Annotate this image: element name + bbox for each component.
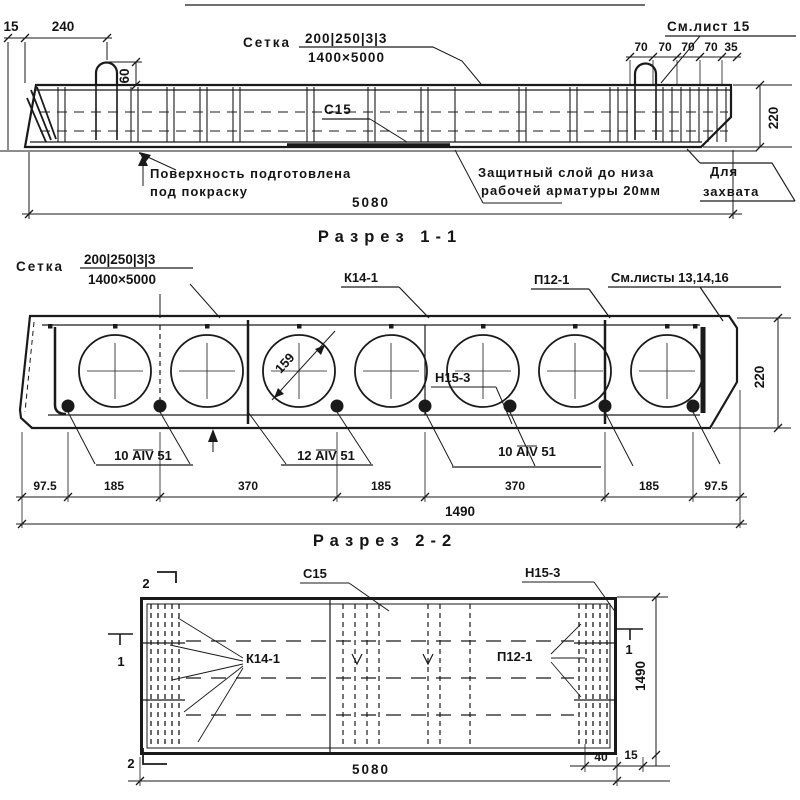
chain-dim: 370 [238,479,258,493]
up-arrow-head [208,429,218,442]
dim-35: 35 [724,40,738,54]
s1-outline [20,316,737,428]
section-2-title: Разрез 2-2 [313,532,457,550]
section-1-title: Разрез 1-1 [318,228,462,246]
blueprint-sheet: 60 15 240 Сетка 200|250|3|3 1400×5000 См… [0,0,800,800]
s2-p12-leaders [551,624,585,697]
cut-marker-2-bottom-label: 2 [127,756,134,771]
dim-length: 5080 [352,195,390,210]
mesh-leader [433,47,481,84]
dim-loop: 240 [52,19,75,34]
p12-label: П12-1 [534,272,569,287]
s2-c15-label: С15 [303,566,327,581]
dia-159-arrow-low [274,388,284,398]
rebar-dot [419,400,432,413]
rebar-label-underlines [96,465,601,467]
cut-marker-2-top [157,572,176,583]
rebar-dot [331,400,344,413]
chain-dim: 97.5 [33,479,57,493]
s1-mesh-leaders [160,284,220,318]
section-2-2-view: Разрез 2-2 С15 Н15-3 К14-1 П12-1 2 2 1 1… [108,532,670,786]
stirrup-bars [58,87,726,142]
s1-mesh-label: Сетка [16,259,64,274]
cut-marker-1-right [616,629,643,640]
rebar-dot [154,400,167,413]
surface-note-line1: Поверхность подготовлена [150,166,351,181]
surface-note-line2: под покраску [150,184,248,199]
rebar-dot [504,400,517,413]
bar-direction-arrows [352,654,433,664]
panel-drawing: 60 15 240 Сетка 200|250|3|3 1400×5000 См… [0,0,800,800]
s2-dim-width: 1490 [633,661,648,691]
chain-dim: 97.5 [704,479,728,493]
left-mesh-zone [151,604,179,748]
chain-dim: 185 [104,479,124,493]
s1-mesh-bottom: 1400×5000 [88,272,156,287]
k14-underline-leader [341,287,429,318]
beam-flange-lines [30,90,731,142]
dim-loop-height: 60 [117,68,132,83]
mesh-label: Сетка [243,35,291,50]
mesh-top: 200|250|3|3 [305,31,387,46]
s2-k14-label: К14-1 [246,651,280,666]
s2-dim-40: 40 [594,750,608,764]
elevation-view: 60 15 240 Сетка 200|250|3|3 1400×5000 См… [0,5,796,219]
see-sheet-note: См.лист 15 [667,19,750,34]
p12-underline-leader [531,289,610,318]
k14-label: К14-1 [344,270,378,285]
void-diameter: 159 [272,350,298,376]
right-mesh-crossbars [574,643,614,700]
dia-159-arrow-high [315,345,325,355]
s1-bevel-dashed [25,322,34,412]
grip-note-line1: Для [710,164,738,179]
cut-marker-1-left [108,634,133,645]
s2-k14-leaders [170,618,243,742]
see-sheets-note: См.листы 13,14,16 [611,270,729,285]
s2-h15-label: Н15-3 [525,565,560,580]
h15-label: Н15-3 [435,370,470,385]
s2-p12-label: П12-1 [497,649,532,664]
plate-label: С15 [324,102,352,117]
cut-marker-1-left-label: 1 [117,654,124,669]
cut-marker-1-right-label: 1 [625,642,632,657]
right-mesh-zone [579,604,607,748]
section-1-1-view: Разрез 1-1 Сетка 200|250|3|3 1400×5000 К… [16,228,791,528]
dim-total: 1490 [445,504,475,519]
chain-dim: 370 [505,479,525,493]
s1-dim-height: 220 [752,366,767,389]
dim-70-b: 70 [658,40,672,54]
s1-mesh-top: 200|250|3|3 [84,252,156,267]
rebar-dot [687,400,700,413]
dim-70-a: 70 [634,40,648,54]
rebar-dot [62,400,75,413]
cut-marker-2-top-label: 2 [142,576,149,591]
dim-edge: 15 [3,19,19,34]
cover-note-line2: рабочей арматуры 20мм [481,183,661,198]
cover-note-line1: Защитный слой до низа [478,165,654,180]
dim-70-d: 70 [704,40,718,54]
chain-dim: 185 [639,479,659,493]
grip-note-line2: захвата [703,184,759,199]
dim-70-c: 70 [681,40,695,54]
mesh-bottom: 1400×5000 [308,50,385,65]
lifting-loop-left [96,63,117,86]
s2-dim-15: 15 [624,748,638,762]
rebar-dot [599,400,612,413]
s2-dim-length: 5080 [352,762,390,777]
cut-marker-2-bottom [143,748,167,764]
dim-height: 220 [766,107,781,130]
mid-dashed-bars [343,604,470,748]
chain-dim: 185 [371,479,391,493]
